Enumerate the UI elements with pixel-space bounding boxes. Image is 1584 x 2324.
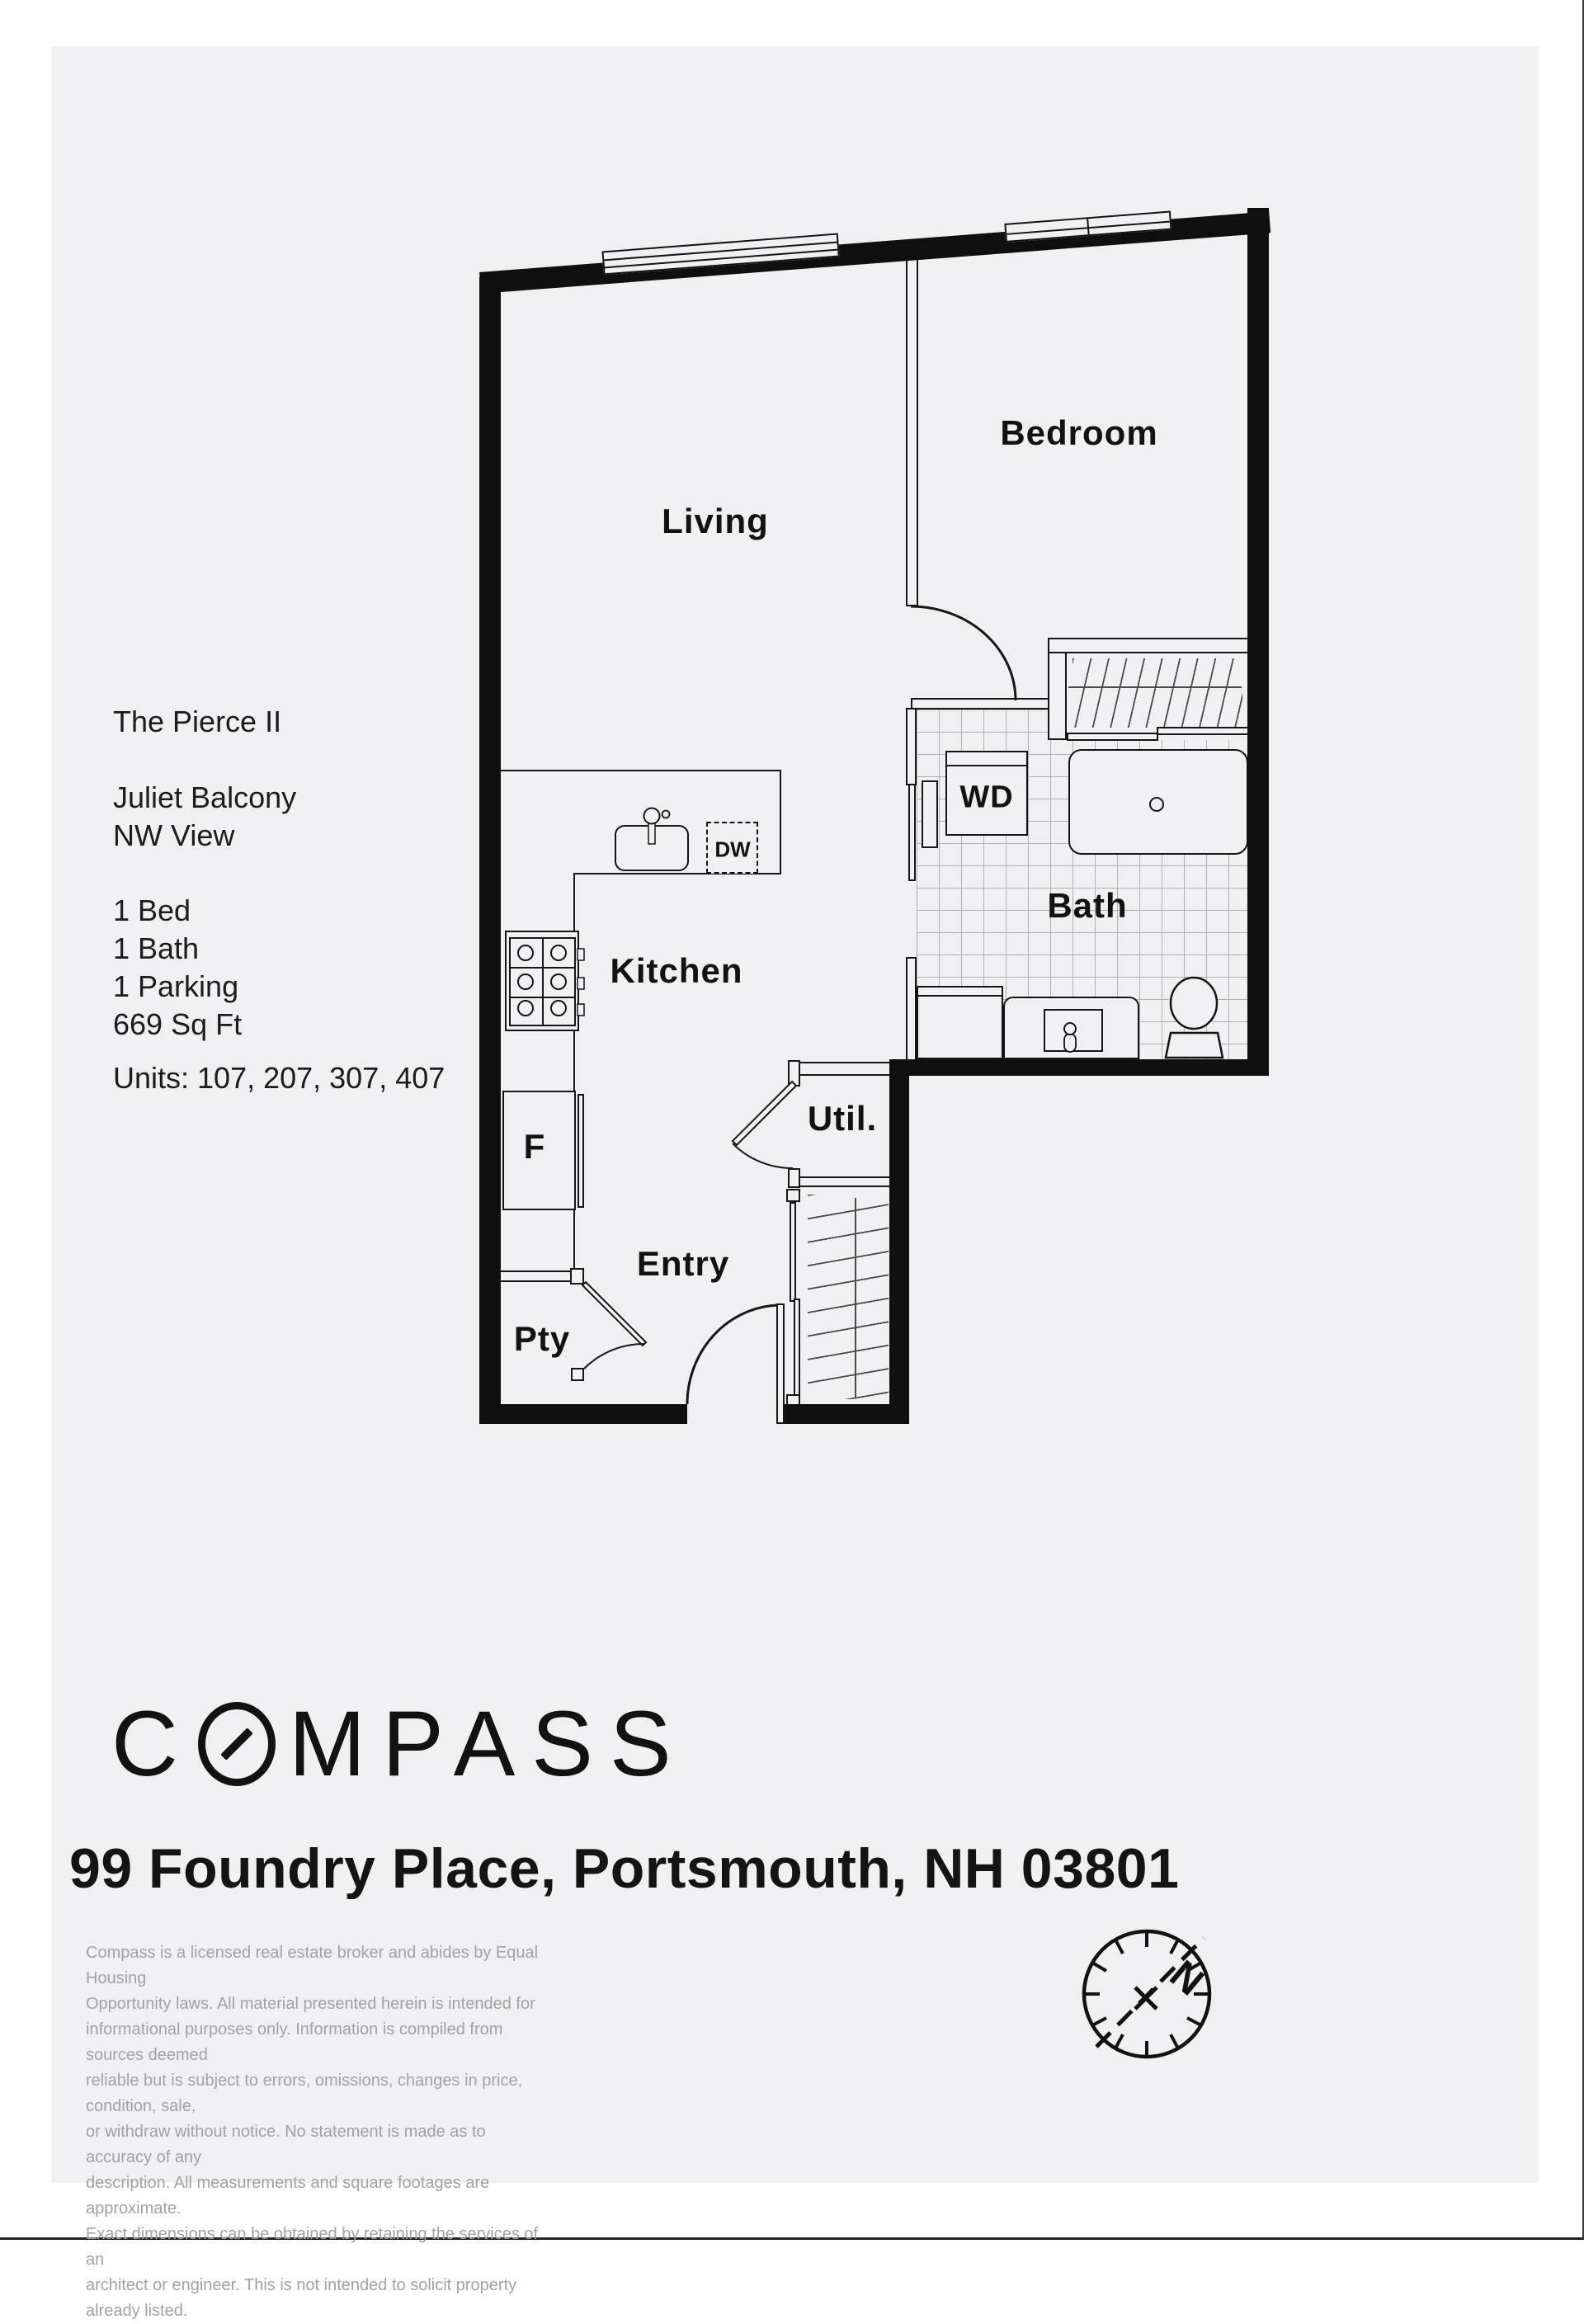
pantry-door-leaf: [582, 1282, 646, 1346]
fridge-label: F: [524, 1127, 546, 1167]
units-list: Units: 107, 207, 307, 407: [113, 1059, 445, 1097]
bed-count: 1 Bed: [113, 892, 242, 930]
logo-letter-c: C: [111, 1704, 195, 1784]
toilet-bowl: [1171, 978, 1217, 1029]
bath-count: 1 Bath: [113, 930, 242, 968]
square-footage: 669 Sq Ft: [113, 1006, 242, 1044]
dishwasher-label: DW: [714, 837, 750, 863]
plan-detail-overlay: N: [0, 0, 1584, 2240]
compass-rose-icon: N: [1084, 1931, 1212, 2057]
balcony-line: Juliet Balcony: [113, 779, 296, 817]
view-line: NW View: [113, 817, 296, 855]
washer-dryer-label: WD: [959, 780, 1013, 816]
logo-letters-mpass: MPASS: [289, 1704, 688, 1784]
vanity-faucet-body: [1064, 1034, 1076, 1052]
entry-door-leaf: [776, 1303, 785, 1424]
building-name: The Pierce II: [113, 703, 281, 741]
stove-knobs: [577, 949, 584, 1016]
compass-logo: C MPASS: [111, 1704, 688, 1784]
entry-door-arc: [687, 1305, 781, 1404]
vanity-faucet-head: [1064, 1023, 1076, 1035]
canvas: N Living Bedroom Kitchen Bath Entry Util…: [0, 0, 1584, 2240]
util-door-arc: [733, 1143, 793, 1168]
util-label: Util.: [808, 1099, 877, 1138]
legal-disclaimer: Compass is a licensed real estate broker…: [86, 1940, 548, 2324]
sink-faucet-knob: [662, 811, 670, 818]
util-door-leaf: [733, 1082, 796, 1145]
unit-info-block: The Pierce II: [113, 703, 281, 741]
floor-plan-page: { "info": { "building": "The Pierce II",…: [0, 0, 1584, 2240]
entry-label: Entry: [637, 1244, 729, 1284]
bedroom-door-arc: [911, 606, 1016, 700]
stove-burners: [518, 945, 566, 1016]
pantry-label: Pty: [514, 1319, 570, 1359]
pantry-door-arc: [584, 1344, 644, 1369]
toilet-tank: [1166, 1033, 1223, 1058]
kitchen-label: Kitchen: [610, 951, 742, 991]
living-label: Living: [662, 502, 769, 541]
logo-needle-icon: [220, 1728, 253, 1761]
sink-faucet-head: [644, 808, 660, 824]
property-address: 99 Foundry Place, Portsmouth, NH 03801: [69, 1836, 1179, 1901]
logo-o-compass-icon: [198, 1702, 276, 1786]
bath-label: Bath: [1047, 886, 1127, 926]
bedroom-label: Bedroom: [1000, 413, 1157, 453]
north-label: N: [1162, 1953, 1212, 2005]
tub-drain: [1150, 798, 1163, 811]
parking-count: 1 Parking: [113, 968, 242, 1006]
